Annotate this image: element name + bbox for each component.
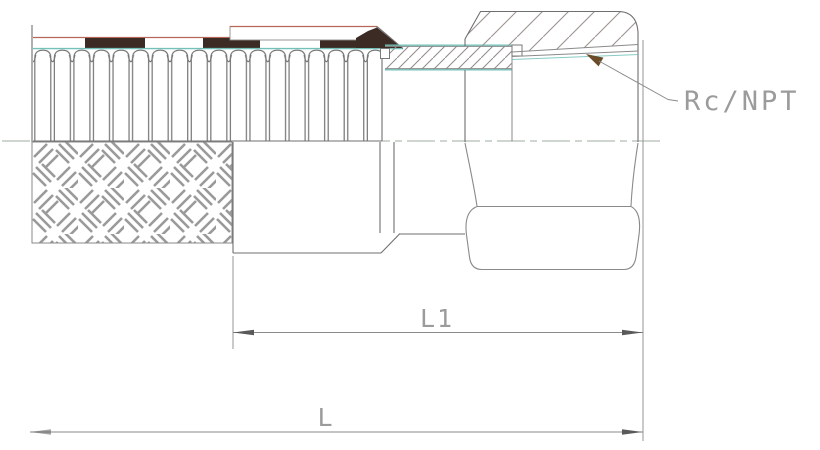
hose-fitting-drawing: Rc/NPT L1 L [0, 0, 820, 450]
dimension-l1: L1 [233, 304, 643, 335]
dimension-l: L [30, 403, 643, 435]
dim-arrow-right-icon [622, 330, 643, 335]
dim-arrow-left-icon [30, 429, 51, 434]
hex-nut-external [465, 143, 640, 270]
band-dark-segment [85, 38, 145, 48]
hose-cover-band [33, 27, 403, 49]
socket-chamfer [381, 234, 400, 254]
dim-arrow-left-icon [233, 330, 254, 335]
drawing-canvas: Rc/NPT L1 L [0, 0, 820, 450]
thread-callout: Rc/NPT [586, 54, 800, 117]
braid-section [32, 142, 232, 243]
thread-label: Rc/NPT [684, 86, 800, 117]
hex-nut-section [465, 12, 638, 143]
dim-arrow-right-icon [622, 429, 643, 434]
weld-collar-detail [381, 49, 390, 59]
dim-l1-label: L1 [420, 304, 454, 333]
nipple-stem [381, 45, 523, 234]
dim-l-label: L [317, 403, 334, 432]
crimp-socket [233, 142, 400, 253]
